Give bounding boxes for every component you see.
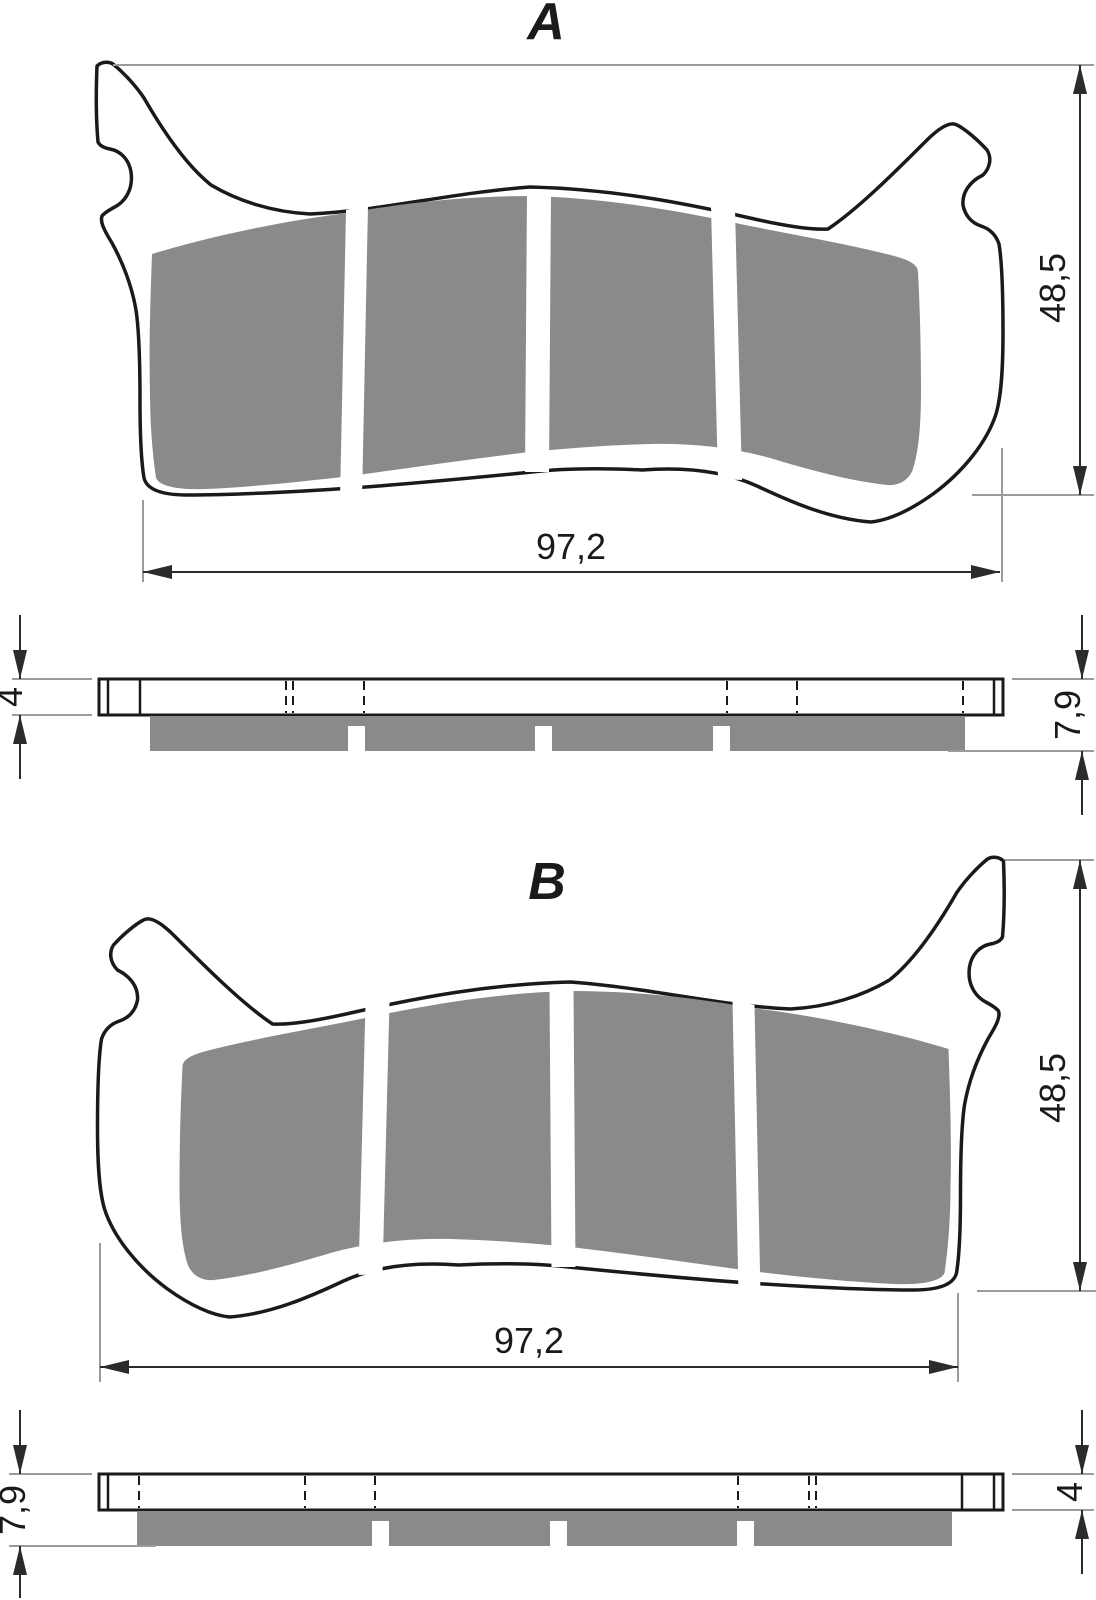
arrowhead-left	[100, 1360, 129, 1374]
arrowhead-down	[13, 650, 27, 679]
arrowhead-up	[1075, 1510, 1089, 1539]
arrowhead-down	[1073, 1262, 1087, 1291]
dim-backing-a-value: 4	[0, 687, 31, 707]
arrowhead-down	[1073, 466, 1087, 495]
backing-plate-side-a	[99, 679, 1003, 715]
arrowhead-right	[971, 565, 1000, 579]
pad-a-top-view	[96, 62, 1003, 522]
view-b-label: B	[528, 852, 566, 912]
arrowhead-up	[1075, 751, 1089, 780]
arrowhead-right	[929, 1360, 958, 1374]
pad-a-groove-2	[525, 192, 551, 472]
friction-strip-side-a	[150, 717, 965, 751]
arrowhead-up	[13, 1546, 27, 1575]
arrowhead-down	[1075, 1445, 1089, 1474]
dim-total-a-value: 7,9	[1047, 690, 1089, 740]
friction-groove-side-a	[535, 726, 552, 753]
dim-backing-b-value: 4	[1049, 1482, 1091, 1502]
dim-height-a-value: 48,5	[1032, 253, 1074, 323]
view-a-label: A	[527, 0, 565, 52]
arrowhead-up	[1073, 65, 1087, 94]
dim-total-b-value: 7,9	[0, 1485, 34, 1535]
dim-width-b-value: 97,2	[494, 1320, 564, 1362]
side-view-a	[99, 679, 1003, 753]
pad-b-top-view	[98, 857, 1005, 1317]
side-view-b	[99, 1474, 1003, 1548]
arrowhead-left	[143, 565, 172, 579]
arrowhead-up	[13, 715, 27, 744]
brake-pad-technical-drawing: A B 97,2 48,5 4 7,9 97,2 48,5 7,9 4	[0, 0, 1096, 1600]
friction-groove-side-a	[713, 726, 730, 753]
dim-height-b-value: 48,5	[1032, 1053, 1074, 1123]
dim-width-a-value: 97,2	[536, 526, 606, 568]
arrowhead-up	[1073, 860, 1087, 889]
arrowhead-down	[13, 1445, 27, 1474]
friction-groove-side-a	[348, 726, 365, 753]
arrowhead-down	[1075, 650, 1089, 679]
